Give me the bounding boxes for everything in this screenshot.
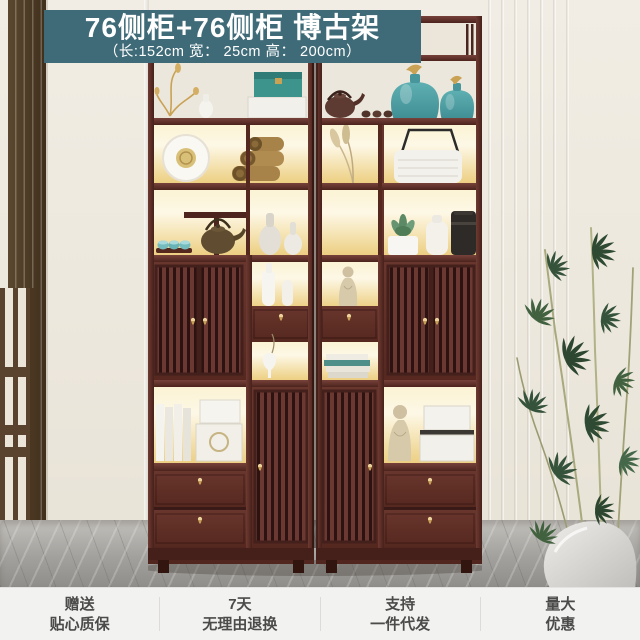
guarantee-line2: 贴心质保 — [0, 615, 159, 635]
drawer — [382, 471, 478, 508]
white-rock — [543, 521, 639, 590]
plant-leaves — [514, 230, 640, 553]
tall-louver-door — [318, 385, 380, 548]
display-cabinet — [148, 8, 482, 580]
guarantee-item: 7天 无理由退换 — [160, 593, 319, 635]
guarantee-item: 支持 一件代发 — [321, 593, 480, 635]
product-image: 76侧柜+76侧柜 博古架 （长:152cm 宽： 25cm 高： 200cm）… — [0, 0, 640, 640]
inner-drawer — [250, 306, 312, 342]
louver-cabinet-doors — [380, 260, 480, 382]
product-title-banner: 76侧柜+76侧柜 博古架 （长:152cm 宽： 25cm 高： 200cm） — [44, 10, 421, 63]
guarantee-item: 量大 优惠 — [481, 593, 640, 635]
cabinet-right-unit — [316, 16, 482, 573]
guarantee-line1: 赠送 — [0, 595, 159, 615]
teal-gift-box — [248, 72, 306, 118]
louver-cabinet-doors — [150, 260, 250, 382]
service-guarantees-bar: 赠送 贴心质保 7天 无理由退换 支持 一件代发 量大 优惠 — [0, 587, 640, 640]
center-gap — [312, 23, 318, 548]
gift-boxes — [196, 400, 242, 461]
product-dimensions: （长:152cm 宽： 25cm 高： 200cm） — [44, 44, 421, 61]
guarantee-line2: 一件代发 — [321, 615, 480, 635]
guarantee-line2: 无理由退换 — [160, 615, 319, 635]
cabinet-left-unit — [148, 16, 314, 573]
teal-teacups — [156, 241, 192, 254]
teacups — [362, 111, 393, 118]
guarantee-line2: 优惠 — [481, 615, 640, 635]
lattice-screen — [0, 288, 34, 524]
drawer — [152, 471, 248, 508]
guarantee-line1: 量大 — [481, 595, 640, 615]
stacked-books — [324, 354, 370, 378]
tall-louver-door — [250, 385, 312, 548]
guarantee-item: 赠送 贴心质保 — [0, 593, 159, 635]
decorative-plate — [162, 134, 210, 182]
drawer — [382, 510, 478, 547]
stacked-boxes — [420, 406, 474, 461]
product-title: 76侧柜+76侧柜 博古架 — [44, 11, 421, 44]
guarantee-line1: 7天 — [160, 595, 319, 615]
bamboo-plant — [495, 210, 640, 590]
guarantee-line1: 支持 — [321, 595, 480, 615]
wall-seam — [46, 0, 48, 522]
drawer — [152, 510, 248, 547]
inner-drawer — [318, 306, 380, 342]
black-canister — [451, 211, 476, 255]
